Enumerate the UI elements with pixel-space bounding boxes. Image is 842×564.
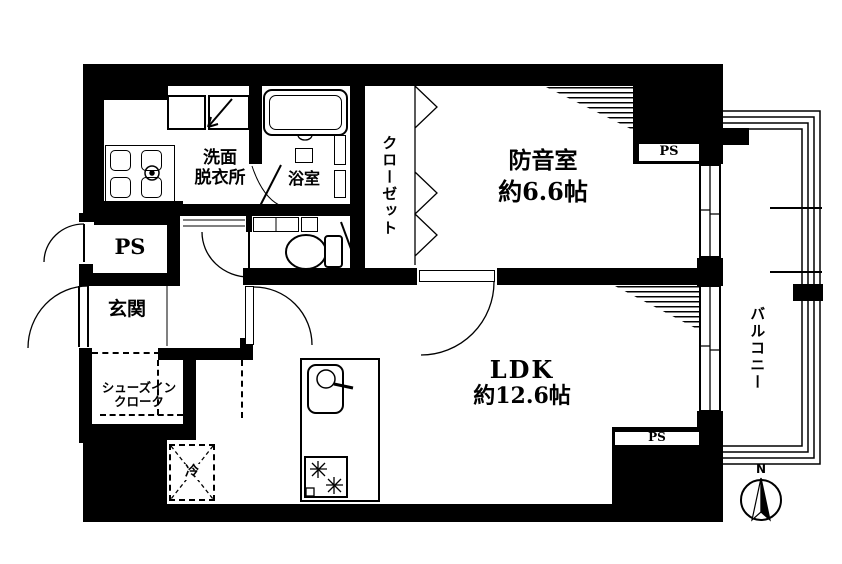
- ldk-label: LDK: [472, 356, 572, 384]
- toilet-tank: [325, 236, 342, 267]
- compass-needle-left: [752, 478, 761, 520]
- compass-north-label: N: [753, 463, 769, 477]
- fixtures-overlay: [0, 0, 842, 564]
- shoe-closet-label-line1: シューズイン: [102, 380, 176, 395]
- ps-door-arc: [44, 224, 84, 262]
- shoe-closet-label-line2: クローク: [114, 394, 164, 409]
- balcony-railing: [723, 111, 820, 464]
- compass-needle-right: [761, 478, 770, 520]
- soundproof-room-label: 防音室: [483, 148, 603, 174]
- washroom-label: 洗面 脱衣所: [180, 149, 260, 188]
- ps-top-right-label: PS: [638, 145, 700, 160]
- entrance-door-leaf: [79, 286, 88, 347]
- ps-bottom-right-label: PS: [614, 431, 700, 445]
- entrance-label: 玄関: [95, 299, 159, 321]
- bathtub-notch: [298, 135, 312, 140]
- balcony-label: バルコニー: [748, 293, 765, 403]
- drain-icon-dot: [150, 171, 154, 175]
- floor-plan: 防音室 約6.6帖 LDK 約12.6帖 クローゼット バルコニー 洗面 脱衣所…: [0, 0, 842, 564]
- ldk-size: 約12.6帖: [462, 384, 582, 409]
- cabinet-arrow-icon: [208, 99, 232, 127]
- ps-left-label: PS: [100, 235, 160, 259]
- faucet-icon: [317, 370, 335, 388]
- refrigerator-label: 冷: [182, 464, 202, 480]
- toilet-door-arc: [202, 232, 249, 277]
- closet-folding-door: [415, 86, 437, 265]
- toilet-bowl: [286, 235, 326, 269]
- faucet-handle: [334, 384, 353, 388]
- bathroom-label: 浴室: [273, 170, 335, 188]
- closet-label: クローゼット: [380, 108, 397, 263]
- stove-burner-icon: [326, 477, 343, 494]
- soundproof-room-size: 約6.6帖: [478, 178, 608, 206]
- window-sash-lines: [701, 166, 719, 410]
- soundproof-door-arc: [421, 282, 494, 355]
- washroom-door-frame: [183, 220, 245, 226]
- stove-burner-icon: [310, 461, 327, 478]
- washroom-label-line1: 洗面: [203, 148, 237, 168]
- washroom-label-line2: 脱衣所: [195, 168, 246, 188]
- shoe-closet-label: シューズイン クローク: [93, 381, 185, 410]
- ldk-door-arc: [254, 287, 312, 345]
- stove-corner-box: [306, 488, 314, 496]
